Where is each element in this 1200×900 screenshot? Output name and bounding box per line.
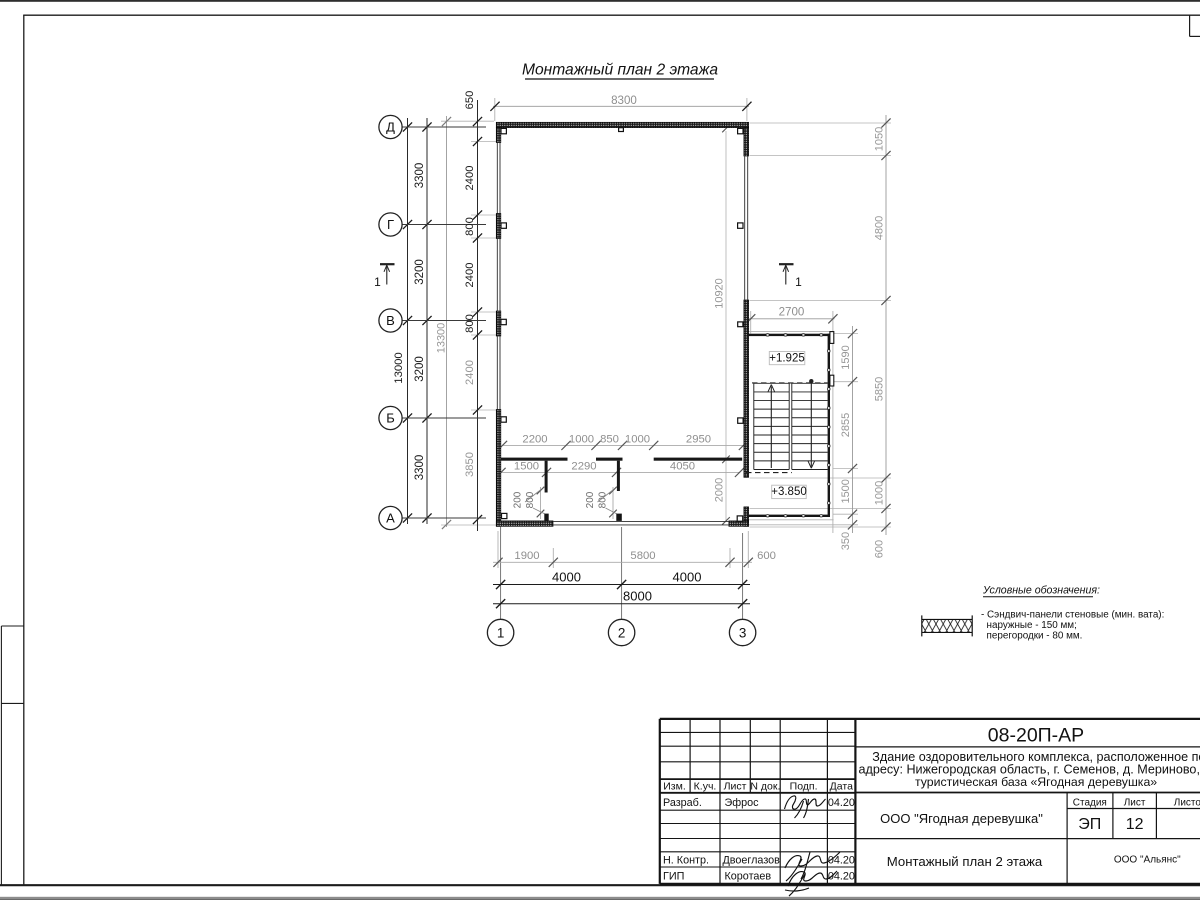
svg-text:перегородки - 80 мм.: перегородки - 80 мм. — [987, 631, 1083, 642]
svg-text:1500: 1500 — [514, 460, 539, 472]
svg-text:ГИП: ГИП — [663, 871, 684, 883]
svg-text:Н. Контр.: Н. Контр. — [663, 854, 709, 866]
svg-text:2700: 2700 — [779, 306, 805, 319]
svg-text:5800: 5800 — [630, 550, 655, 562]
svg-text:А: А — [386, 511, 395, 526]
svg-text:650: 650 — [464, 91, 476, 110]
svg-text:1500: 1500 — [840, 479, 852, 503]
svg-text:8300: 8300 — [611, 94, 637, 107]
svg-text:200: 200 — [585, 491, 596, 508]
svg-text:Изм.: Изм. — [663, 781, 686, 793]
svg-text:800: 800 — [525, 491, 536, 508]
svg-text:4800: 4800 — [874, 216, 886, 240]
svg-text:04.20: 04.20 — [828, 854, 855, 866]
svg-text:Монтажный план 2 этажа: Монтажный план 2 этажа — [522, 62, 718, 79]
svg-text:350: 350 — [840, 532, 852, 550]
svg-text:Г: Г — [387, 217, 394, 232]
svg-text:Д: Д — [386, 120, 395, 135]
svg-text:200: 200 — [513, 491, 524, 508]
svg-text:13300: 13300 — [436, 323, 448, 354]
svg-text:наружные - 150 мм;: наружные - 150 мм; — [987, 620, 1077, 631]
svg-text:2400: 2400 — [464, 166, 476, 191]
svg-text:3300: 3300 — [414, 455, 426, 481]
svg-text:ЭП: ЭП — [1078, 816, 1101, 833]
svg-text:850: 850 — [600, 433, 619, 445]
svg-text:Разраб.: Разраб. — [663, 797, 702, 809]
svg-text:2: 2 — [618, 625, 626, 640]
svg-text:+1.925: +1.925 — [769, 352, 805, 364]
svg-text:Листов: Листов — [1174, 797, 1200, 808]
svg-text:1: 1 — [497, 625, 505, 640]
svg-text:1: 1 — [374, 275, 381, 289]
svg-text:600: 600 — [874, 540, 886, 558]
svg-text:Эфрос: Эфрос — [725, 797, 760, 809]
svg-text:4000: 4000 — [552, 569, 581, 584]
svg-text:1000: 1000 — [874, 481, 886, 505]
svg-text:800: 800 — [464, 314, 476, 333]
svg-text:ООО "Альянс": ООО "Альянс" — [1114, 855, 1181, 866]
svg-text:2000: 2000 — [714, 478, 726, 502]
svg-text:13000: 13000 — [393, 352, 405, 383]
svg-text:Лист: Лист — [724, 781, 747, 793]
svg-text:2950: 2950 — [686, 433, 711, 445]
svg-text:3300: 3300 — [414, 163, 426, 189]
svg-text:3850: 3850 — [464, 452, 476, 477]
svg-text:2290: 2290 — [571, 460, 596, 472]
svg-text:Подп.: Подп. — [790, 781, 818, 793]
svg-text:2400: 2400 — [464, 263, 476, 288]
svg-text:2400: 2400 — [464, 360, 476, 385]
svg-text:N док.: N док. — [750, 781, 780, 793]
svg-text:10920: 10920 — [714, 278, 726, 309]
svg-text:1000: 1000 — [569, 433, 594, 445]
svg-text:ООО "Ягодная деревушка": ООО "Ягодная деревушка" — [880, 811, 1043, 826]
svg-text:1000: 1000 — [625, 433, 650, 445]
svg-text:2200: 2200 — [522, 433, 547, 445]
svg-text:Двоеглазов: Двоеглазов — [723, 854, 781, 866]
svg-text:5850: 5850 — [874, 377, 886, 401]
svg-text:800: 800 — [598, 491, 609, 508]
svg-text:08-20П-АР: 08-20П-АР — [988, 725, 1084, 747]
svg-text:1590: 1590 — [840, 345, 852, 369]
svg-text:12: 12 — [1126, 816, 1144, 833]
svg-text:04.20: 04.20 — [828, 797, 855, 809]
svg-text:1050: 1050 — [874, 127, 886, 151]
svg-text:800: 800 — [464, 217, 476, 236]
svg-text:В: В — [386, 313, 395, 328]
svg-text:Условные обозначения:: Условные обозначения: — [982, 585, 1100, 597]
svg-text:8000: 8000 — [623, 589, 652, 604]
svg-text:1900: 1900 — [514, 550, 539, 562]
svg-text:Коротаев: Коротаев — [725, 871, 772, 883]
svg-text:4050: 4050 — [670, 460, 695, 472]
svg-text:Стадия: Стадия — [1073, 797, 1107, 808]
svg-text:Монтажный план 2 этажа: Монтажный план 2 этажа — [887, 854, 1043, 869]
svg-text:3200: 3200 — [414, 356, 426, 382]
svg-text:К.уч.: К.уч. — [694, 781, 717, 793]
svg-text:- Сэндвич-панели стеновые (мин: - Сэндвич-панели стеновые (мин. вата): — [981, 610, 1164, 621]
svg-text:Дата: Дата — [830, 781, 853, 793]
svg-text:Лист: Лист — [1124, 797, 1146, 808]
svg-text:600: 600 — [757, 550, 776, 562]
svg-text:1: 1 — [795, 275, 802, 289]
svg-text:4000: 4000 — [673, 569, 702, 584]
svg-text:2855: 2855 — [840, 413, 852, 437]
svg-text:3200: 3200 — [414, 259, 426, 285]
svg-text:3: 3 — [739, 625, 747, 640]
svg-text:туристическая база «Ягодная де: туристическая база «Ягодная деревушка» — [915, 775, 1157, 789]
svg-text:+3.850: +3.850 — [771, 486, 807, 498]
svg-text:Б: Б — [386, 411, 395, 426]
